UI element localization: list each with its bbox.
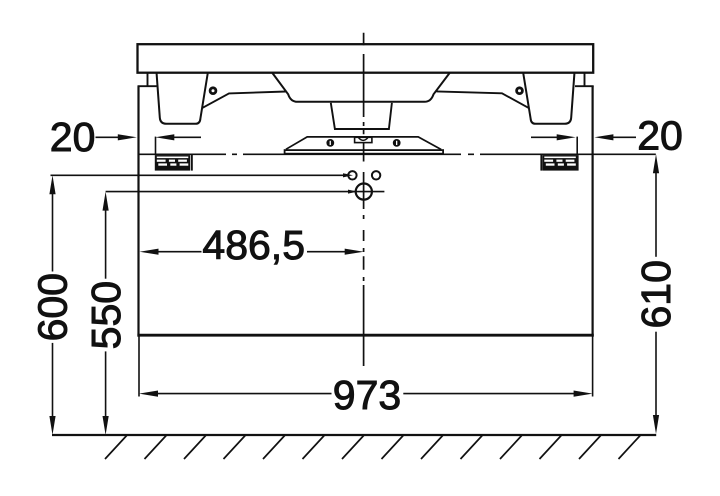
svg-text:600: 600	[30, 273, 76, 341]
svg-text:486,5: 486,5	[202, 222, 305, 268]
svg-text:20: 20	[50, 114, 96, 160]
svg-text:20: 20	[637, 113, 683, 159]
svg-text:610: 610	[633, 260, 679, 328]
svg-text:550: 550	[83, 281, 129, 349]
svg-text:973: 973	[333, 372, 401, 418]
